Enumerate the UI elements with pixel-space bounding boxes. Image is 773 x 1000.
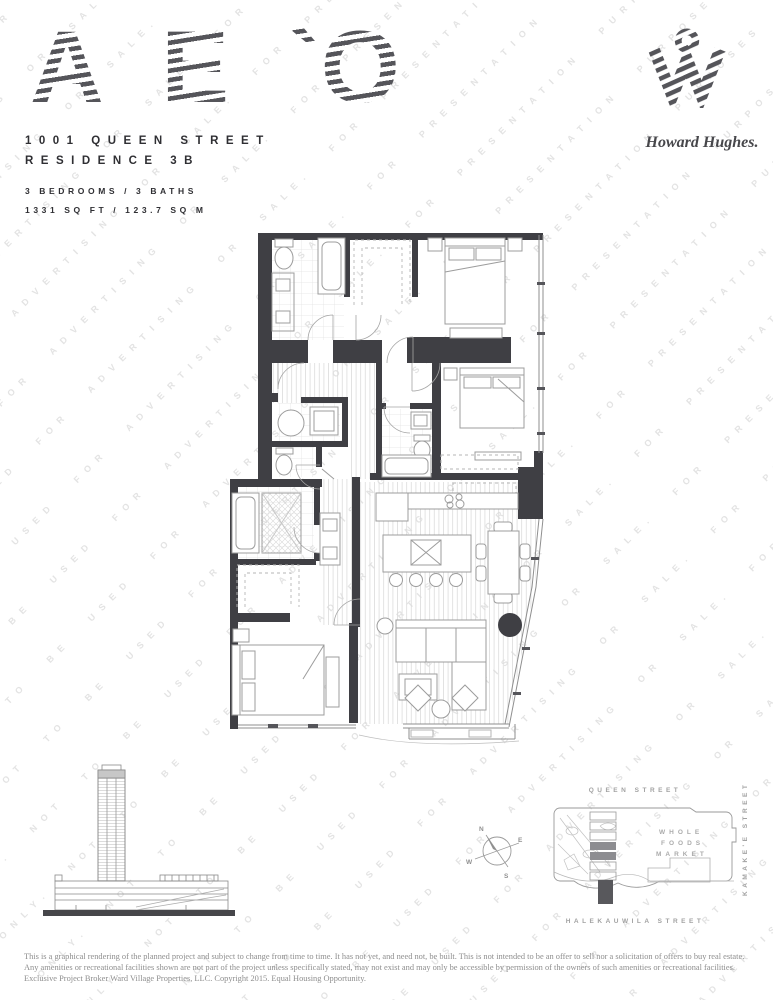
aeo-logo-letter-o: `O (287, 16, 400, 118)
howard-hughes-signature: Howard Hughes. (640, 134, 764, 152)
address-line-2: RESIDENCE 3B (25, 155, 200, 167)
building-elevation (36, 760, 236, 927)
aeo-logo-letter-a: A (30, 16, 104, 118)
site-map: QUEEN STREET HALEKAUWILA STREET KAMAKE'E… (540, 776, 768, 941)
aeo-logo-letter-e: E (161, 16, 229, 118)
store-label-line2: FOODS (661, 840, 704, 847)
specs-area: 1331 SQ FT / 123.7 SQ M (25, 205, 207, 215)
compass-s: S (504, 873, 509, 880)
tower-footprint (590, 812, 616, 880)
master-closet (237, 565, 299, 607)
address-line-1: 1001 QUEEN STREET (25, 135, 271, 147)
store-label-line3: MARKET (656, 851, 708, 858)
floor-plan (213, 227, 558, 764)
street-label-kamakee: KAMAKE'E STREET (742, 782, 749, 896)
compass-icon: N E S W (462, 820, 532, 887)
compass-n: N (479, 826, 484, 833)
specs-bedrooms-baths: 3 BEDROOMS / 3 BATHS (25, 186, 197, 196)
ward-village-w-icon (648, 24, 726, 113)
aeo-logo: A E `O (30, 16, 400, 118)
structural-column (498, 613, 522, 637)
store-label-line1: WHOLE (659, 829, 703, 836)
compass-w: W (466, 859, 473, 866)
street-label-queen: QUEEN STREET (589, 787, 682, 794)
compass-e: E (518, 837, 523, 844)
walk-in-closet (354, 240, 410, 305)
master-bedroom (232, 629, 339, 715)
disclaimer-text: This is a graphical rendering of the pla… (24, 951, 752, 984)
bedroom-2 (428, 238, 522, 338)
unit-location-marker (598, 880, 613, 904)
brochure-page: FOR PRESENTATION PURPOSES ONLY. NOT TO B… (0, 0, 773, 1000)
ground-line (43, 910, 235, 916)
street-label-halekauwila: HALEKAUWILA STREET (566, 918, 705, 925)
